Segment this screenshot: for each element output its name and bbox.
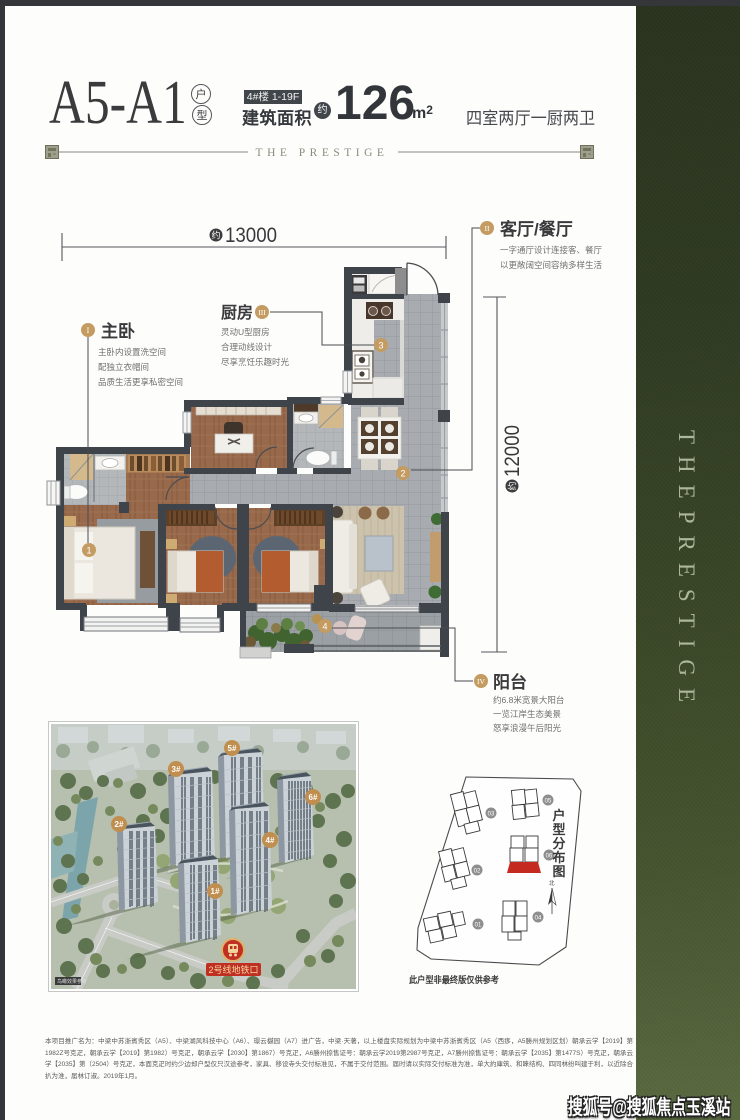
- svg-text:一览江岸生态美景: 一览江岸生态美景: [493, 709, 561, 719]
- svg-text:分: 分: [552, 836, 565, 851]
- svg-text:III: III: [258, 308, 266, 317]
- svg-text:03: 03: [488, 812, 495, 818]
- svg-text:2: 2: [400, 469, 405, 479]
- svg-text:1: 1: [86, 546, 91, 556]
- svg-text:1#: 1#: [211, 887, 220, 896]
- svg-text:配独立衣帽间: 配独立衣帽间: [98, 362, 149, 372]
- svg-text:怒享浪漫午后阳光: 怒享浪漫午后阳光: [493, 723, 562, 733]
- svg-text:05: 05: [545, 799, 552, 805]
- svg-text:3: 3: [378, 341, 383, 351]
- svg-text:02: 02: [474, 869, 481, 875]
- svg-text:6#: 6#: [309, 793, 318, 802]
- svg-text:约: 约: [507, 481, 518, 490]
- svg-text:13000: 13000: [225, 224, 277, 247]
- svg-text:鸟瞰效果参考: 鸟瞰效果参考: [57, 978, 87, 985]
- svg-text:布: 布: [552, 850, 565, 865]
- svg-text:北: 北: [549, 879, 555, 887]
- svg-text:品质生活更享私密空间: 品质生活更享私密空间: [98, 377, 183, 387]
- svg-text:厨房: 厨房: [221, 303, 253, 322]
- svg-text:01: 01: [475, 923, 482, 929]
- svg-text:约6.8米宽景大阳台: 约6.8米宽景大阳台: [493, 695, 564, 705]
- svg-text:2#: 2#: [115, 820, 124, 829]
- svg-text:4#: 4#: [266, 836, 275, 845]
- svg-text:客厅/餐厅: 客厅/餐厅: [499, 219, 573, 239]
- svg-text:II: II: [485, 224, 490, 233]
- svg-text:尽享烹饪乐趣时光: 尽享烹饪乐趣时光: [221, 357, 290, 367]
- svg-text:以更敞阔空间容纳多样生活: 以更敞阔空间容纳多样生活: [500, 260, 603, 270]
- svg-text:合理动线设计: 合理动线设计: [221, 342, 273, 352]
- svg-text:主卧内设置洗空间: 主卧内设置洗空间: [98, 347, 166, 357]
- svg-text:灵动U型厨房: 灵动U型厨房: [221, 327, 270, 337]
- svg-text:户: 户: [552, 808, 565, 823]
- svg-text:4: 4: [322, 622, 327, 632]
- svg-text:04: 04: [535, 916, 542, 922]
- svg-text:阳台: 阳台: [493, 672, 527, 692]
- svg-text:5#: 5#: [228, 744, 237, 753]
- svg-text:I: I: [87, 326, 90, 335]
- svg-text:12000: 12000: [501, 425, 524, 477]
- svg-text:型: 型: [552, 822, 565, 837]
- svg-text:一字通厅设计连接客、餐厅: 一字通厅设计连接客、餐厅: [500, 245, 603, 255]
- svg-text:IV: IV: [477, 677, 485, 686]
- svg-text:约: 约: [211, 230, 220, 241]
- svg-text:此户型非最终版仅供参考: 此户型非最终版仅供参考: [409, 974, 499, 985]
- svg-text:THE PRESTIGE: THE PRESTIGE: [256, 147, 389, 159]
- svg-text:主卧: 主卧: [101, 321, 135, 341]
- svg-text:3#: 3#: [172, 765, 181, 774]
- svg-text:2号线地铁口: 2号线地铁口: [208, 964, 258, 975]
- svg-text:图: 图: [552, 864, 565, 879]
